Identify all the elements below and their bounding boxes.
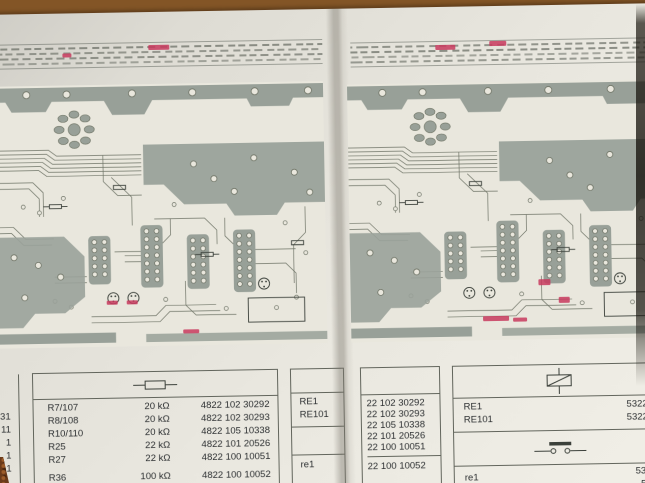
part-number-cell: 4822 101 20526 xyxy=(170,438,278,452)
relay-ref: RE101 xyxy=(464,414,493,427)
switch-ref: re1 xyxy=(465,472,479,483)
relay-row: RE1 RE101 5322 2 5322 2 xyxy=(453,395,645,433)
ref-cell: R7/107 xyxy=(33,402,111,416)
component-ref-band-left xyxy=(0,39,323,70)
pcb-layout-diagram-right xyxy=(347,79,645,342)
highlight-mark xyxy=(489,41,506,46)
part-number-cell: 4822 105 10338 xyxy=(170,425,278,439)
value-cell: 20 kΩ xyxy=(112,427,170,441)
part-number-cell: 5322 2 xyxy=(627,411,645,424)
switch-symbol-header xyxy=(454,429,645,467)
highlight-mark xyxy=(538,279,550,285)
value-cell: 22 kΩ xyxy=(112,440,170,454)
part-number-cell: 22 100 10051 xyxy=(367,441,440,453)
part-number-cell: 4822 100 10051 xyxy=(170,451,278,465)
ref-cell: R25 xyxy=(34,441,112,455)
highlight-mark xyxy=(107,301,118,305)
relay-ref: RE1 xyxy=(464,401,493,414)
manual-pages-sheet: 31 11 1 1 1 R7/107 20 kΩ 4822 102 30292 xyxy=(0,3,645,483)
part-number-cell: 4822 102 30293 xyxy=(170,412,278,426)
photo-scene: 31 11 1 1 1 R7/107 20 kΩ 4822 102 30292 xyxy=(0,0,645,483)
part-number-cell: 22 100 10052 xyxy=(367,455,440,472)
resistor-symbol-icon xyxy=(133,378,177,391)
resistor-parts-table: R7/107 20 kΩ 4822 102 30292 R8/108 20 kΩ… xyxy=(32,369,280,483)
highlight-mark xyxy=(559,297,570,303)
highlight-mark xyxy=(483,316,509,321)
edge-fragment: 1 xyxy=(0,436,11,449)
part-number-cell: 532 xyxy=(636,478,645,483)
edge-fragment: 11 xyxy=(0,423,11,436)
ref-cell: R27 xyxy=(34,454,112,468)
part-number-cell: 4822 100 10052 xyxy=(171,469,279,483)
part-column-header xyxy=(361,367,439,395)
pcb-layout-diagram-left xyxy=(0,81,327,349)
part-number-column: 22 102 30292 22 102 30293 22 105 10338 2… xyxy=(360,366,442,483)
table-divider-line xyxy=(18,374,21,483)
page-edge-shadow xyxy=(636,4,645,386)
edge-fragment: 31 xyxy=(0,411,11,424)
value-cell: 100 kΩ xyxy=(113,471,171,483)
ref-cell: R36 xyxy=(35,472,113,483)
highlight-mark xyxy=(127,300,138,304)
value-cell: 22 kΩ xyxy=(112,453,170,467)
relay-parts-table: RE1 RE101 5322 2 5322 2 re1 5322 532 xyxy=(452,362,645,483)
ref-cell: R8/108 xyxy=(34,415,112,429)
switch-row: re1 5322 532 xyxy=(455,463,645,483)
part-number-cell: 4822 102 30292 xyxy=(169,399,277,413)
value-cell: 20 kΩ xyxy=(111,401,169,415)
value-cell: 20 kΩ xyxy=(112,414,170,428)
relay-symbol-header xyxy=(453,363,645,399)
highlight-mark xyxy=(183,329,199,333)
highlight-mark xyxy=(62,53,71,57)
push-switch-symbol-icon xyxy=(534,439,586,456)
part-number-cell: 5322 xyxy=(636,465,645,478)
ref-cell: R10/110 xyxy=(34,428,112,442)
highlight-mark xyxy=(148,45,169,50)
highlight-mark xyxy=(435,45,455,50)
relay-symbol-icon xyxy=(543,367,575,394)
highlight-mark xyxy=(513,317,527,321)
part-number-cell: 5322 2 xyxy=(626,398,645,411)
